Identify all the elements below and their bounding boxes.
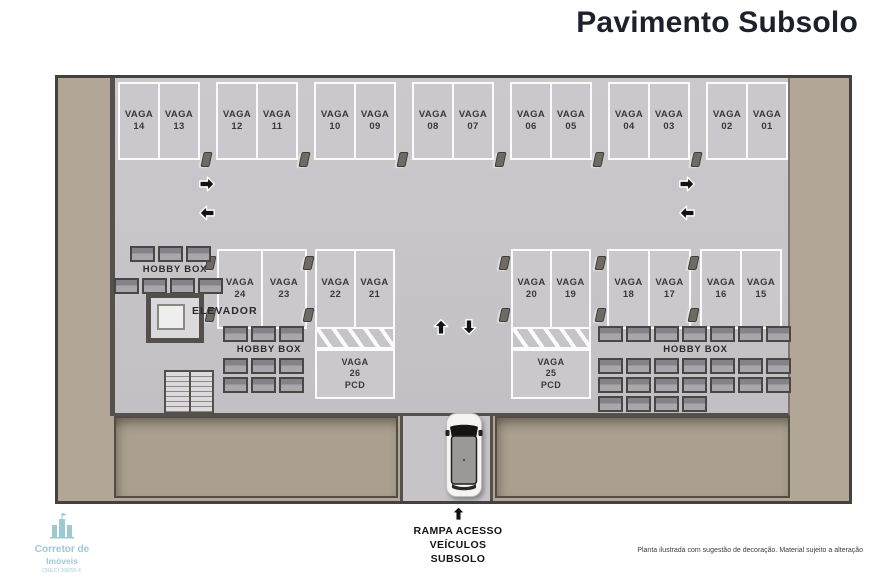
space-number: 25 (546, 368, 557, 379)
hobby-box-unit (626, 396, 651, 412)
arrow-right-icon (678, 175, 696, 193)
parking-space-04: VAGA04 (610, 84, 648, 158)
hobby-box-unit (279, 358, 304, 374)
page-title: Pavimento Subsolo (576, 6, 858, 40)
elevator-shaft (146, 293, 204, 343)
hobby-box-unit (710, 358, 735, 374)
space-word: VAGA (517, 110, 545, 121)
space-word: VAGA (753, 110, 781, 121)
parking-pair-06-05: VAGA06VAGA05 (510, 82, 592, 160)
space-word: VAGA (655, 278, 683, 289)
lower-recess-left (114, 416, 398, 498)
hobby-box-unit (223, 377, 248, 393)
space-number: 16 (715, 290, 726, 301)
car-top-view (445, 412, 483, 498)
parking-space-07: VAGA07 (452, 84, 492, 158)
hobby-box-unit (251, 358, 276, 374)
parking-space-12: VAGA12 (218, 84, 256, 158)
watermark-registry: CRECI 39055-F (14, 567, 110, 575)
arrow-right-icon (198, 175, 216, 193)
hobby-box-unit (766, 358, 791, 374)
space-number: 14 (133, 122, 144, 133)
hobby-box-row (598, 326, 791, 342)
space-word: VAGA (342, 357, 369, 368)
hobby-box-unit (598, 377, 623, 393)
stairs-rail (189, 372, 191, 412)
space-number: 17 (664, 290, 675, 301)
space-word: VAGA (165, 110, 193, 121)
hobby-box-label: HOBBY BOX (143, 265, 208, 275)
hobby-box-unit (598, 396, 623, 412)
hobby-box-unit (682, 377, 707, 393)
arrow-left-icon (678, 204, 696, 222)
elevator-label: ELEVADOR (192, 305, 258, 317)
hobby-box-grid (223, 358, 304, 393)
elevator-cab (157, 304, 185, 330)
space-word: VAGA (223, 110, 251, 121)
hobby-box-grid (598, 358, 791, 393)
space-number: 11 (272, 122, 283, 133)
space-word: VAGA (419, 110, 447, 121)
broker-watermark: Corretor de Imóveis CRECI 39055-F (14, 511, 110, 575)
space-word: VAGA (270, 278, 298, 289)
hobby-box-unit (654, 396, 679, 412)
hobby-box-row (598, 396, 707, 412)
space-number: 24 (234, 290, 245, 301)
hobby-box-unit (682, 396, 707, 412)
parking-space-pcd-25: VAGA 25 PCD (511, 349, 591, 399)
hobby-box-row (598, 358, 791, 374)
hobby-box-unit (251, 326, 276, 342)
space-number: 23 (278, 290, 289, 301)
space-number: 19 (565, 290, 576, 301)
space-word: VAGA (263, 110, 291, 121)
ramp-caption: RAMPA ACESSO VEÍCULOS SUBSOLO (378, 524, 538, 567)
space-number: 20 (526, 290, 537, 301)
space-number: 01 (761, 122, 772, 133)
hobby-box-unit (186, 246, 211, 262)
building-logo-icon (47, 511, 77, 539)
page: { "header": { "title": "Pavimento Subsol… (0, 0, 893, 585)
aisle-flow-arrows-left (198, 175, 216, 222)
hobby-box-unit (766, 326, 791, 342)
space-number: 18 (623, 290, 634, 301)
parking-pair-04-03: VAGA04VAGA03 (608, 82, 690, 160)
parking-space-21: VAGA21 (354, 251, 393, 327)
space-number: 07 (467, 122, 478, 133)
hobby-box-label: HOBBY BOX (237, 345, 302, 355)
parking-pair-12-11: VAGA12VAGA11 (216, 82, 298, 160)
hobby-box-unit (251, 377, 276, 393)
space-word: VAGA (459, 110, 487, 121)
space-tag: PCD (345, 380, 365, 391)
space-word: VAGA (557, 110, 585, 121)
parking-pair-14-13: VAGA14VAGA13 (118, 82, 200, 160)
space-word: VAGA (713, 110, 741, 121)
space-number: 22 (330, 290, 341, 301)
hobby-box-unit (710, 377, 735, 393)
parking-space-01: VAGA01 (746, 84, 786, 158)
hobby-box-unit (710, 326, 735, 342)
watermark-brand-bottom: Imóveis (14, 556, 110, 567)
hobby-box-unit (654, 326, 679, 342)
hobby-box-unit (738, 326, 763, 342)
watermark-brand-top: Corretor de (14, 544, 110, 556)
hobby-box-area-center: HOBBY BOX (223, 326, 315, 393)
space-number: 13 (173, 122, 184, 133)
parking-pair-02-01: VAGA02VAGA01 (706, 82, 788, 160)
parking-space-18: VAGA18 (609, 251, 648, 327)
lower-recess-right (495, 416, 790, 498)
parking-space-06: VAGA06 (512, 84, 550, 158)
disclaimer-text: Planta ilustrada com sugestão de decoraç… (637, 547, 863, 554)
space-word: VAGA (321, 278, 349, 289)
space-word: VAGA (360, 278, 388, 289)
hobby-box-unit (626, 358, 651, 374)
hobby-box-unit (223, 326, 248, 342)
hobby-box-unit (279, 326, 304, 342)
ramp-caption-line: SUBSOLO (378, 552, 538, 566)
stairs (164, 370, 214, 414)
arrow-left-icon (198, 204, 216, 222)
parking-pair-08-07: VAGA08VAGA07 (412, 82, 494, 160)
parking-space-pcd-26: VAGA 26 PCD (315, 349, 395, 399)
parking-space-09: VAGA09 (354, 84, 394, 158)
hobby-box-row (598, 377, 791, 393)
space-number: 26 (350, 368, 361, 379)
hobby-box-row (130, 246, 211, 262)
space-word: VAGA (361, 110, 389, 121)
hobby-box-unit (626, 326, 651, 342)
space-word: VAGA (321, 110, 349, 121)
space-number: 10 (329, 122, 340, 133)
hobby-box-unit (682, 326, 707, 342)
space-number: 12 (231, 122, 242, 133)
hobby-box-row (223, 358, 304, 374)
parking-space-19: VAGA19 (550, 251, 589, 327)
parking-group-18-17: VAGA18VAGA17 (607, 249, 691, 329)
parking-space-05: VAGA05 (550, 84, 590, 158)
parking-space-23: VAGA23 (261, 251, 305, 327)
arrow-up-icon (450, 505, 467, 522)
hobby-box-unit (682, 358, 707, 374)
arrow-down-icon (460, 318, 478, 336)
space-word: VAGA (556, 278, 584, 289)
parking-space-22: VAGA22 (317, 251, 354, 327)
space-number: 15 (755, 290, 766, 301)
hobby-box-unit (626, 377, 651, 393)
hobby-box-unit (223, 358, 248, 374)
hobby-box-unit (130, 246, 155, 262)
parking-space-11: VAGA11 (256, 84, 296, 158)
parking-space-08: VAGA08 (414, 84, 452, 158)
parking-group-16-15: VAGA16VAGA15 (700, 249, 782, 329)
pcd-access-hatch (511, 329, 591, 349)
space-number: 02 (721, 122, 732, 133)
hobby-box-unit (654, 358, 679, 374)
hobby-box-unit (738, 377, 763, 393)
hobby-box-label: HOBBY BOX (663, 345, 728, 355)
hobby-box-row (223, 326, 304, 342)
space-word: VAGA (707, 278, 735, 289)
parking-space-15: VAGA15 (740, 251, 780, 327)
ramp-caption-line: VEÍCULOS (378, 538, 538, 552)
space-tag: PCD (541, 380, 561, 391)
parking-pair-10-09: VAGA10VAGA09 (314, 82, 396, 160)
space-word: VAGA (615, 110, 643, 121)
hobby-box-unit (738, 358, 763, 374)
hobby-box-area-left: HOBBY BOX (114, 246, 236, 294)
hobby-box-unit (279, 377, 304, 393)
parking-space-14: VAGA14 (120, 84, 158, 158)
space-number: 21 (369, 290, 380, 301)
space-word: VAGA (655, 110, 683, 121)
hobby-box-unit (766, 377, 791, 393)
parking-space-16: VAGA16 (702, 251, 740, 327)
hobby-box-row (223, 377, 304, 393)
space-word: VAGA (747, 278, 775, 289)
space-number: 09 (369, 122, 380, 133)
floor-plan: VAGA14VAGA13VAGA12VAGA11VAGA10VAGA09VAGA… (55, 75, 852, 504)
space-number: 06 (525, 122, 536, 133)
space-word: VAGA (125, 110, 153, 121)
parking-row-top: VAGA14VAGA13VAGA12VAGA11VAGA10VAGA09VAGA… (118, 82, 788, 160)
hobby-box-area-right: HOBBY BOX (598, 326, 793, 412)
ramp-caption-line: RAMPA ACESSO (378, 524, 538, 538)
pcd-access-hatch (315, 329, 395, 349)
parking-group-22-21: VAGA22VAGA21 (315, 249, 395, 329)
parking-space-03: VAGA03 (648, 84, 688, 158)
space-number: 03 (663, 122, 674, 133)
arrow-up-icon (432, 318, 450, 336)
hobby-box-unit (598, 358, 623, 374)
space-word: VAGA (538, 357, 565, 368)
space-number: 04 (623, 122, 634, 133)
space-number: 08 (427, 122, 438, 133)
parking-space-02: VAGA02 (708, 84, 746, 158)
space-word: VAGA (614, 278, 642, 289)
parking-space-20: VAGA20 (513, 251, 550, 327)
parking-space-10: VAGA10 (316, 84, 354, 158)
ramp-direction-arrows (432, 318, 478, 336)
hobby-box-unit (158, 246, 183, 262)
parking-space-13: VAGA13 (158, 84, 198, 158)
space-number: 05 (565, 122, 576, 133)
space-word: VAGA (517, 278, 545, 289)
hobby-box-unit (598, 326, 623, 342)
parking-group-20-19: VAGA20VAGA19 (511, 249, 591, 329)
aisle-flow-arrows-right (678, 175, 696, 222)
hobby-box-unit (114, 278, 139, 294)
parking-space-17: VAGA17 (648, 251, 689, 327)
hobby-box-unit (654, 377, 679, 393)
